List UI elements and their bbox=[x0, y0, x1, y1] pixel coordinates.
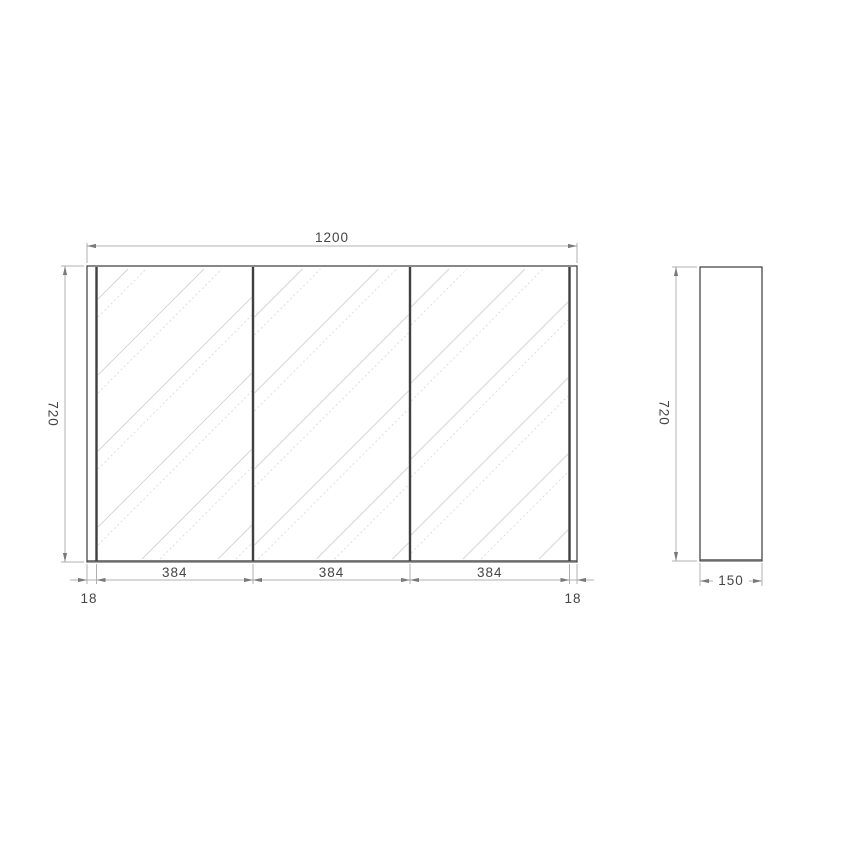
mirror-hatch-line bbox=[160, 467, 252, 559]
mirror-hatch-line bbox=[411, 269, 543, 401]
mirror-hatch-line bbox=[98, 269, 146, 317]
mirror-hatch-line bbox=[255, 333, 409, 487]
arrowhead-top bbox=[674, 267, 678, 276]
arrowhead-left bbox=[87, 244, 96, 248]
cabinet-outline bbox=[87, 266, 577, 562]
mirror-hatch-line bbox=[411, 269, 449, 307]
arrowhead bbox=[97, 578, 106, 582]
mirror-hatch-line bbox=[98, 269, 222, 393]
mirror-hatch-line bbox=[255, 269, 397, 411]
arrowhead-bottom bbox=[674, 552, 678, 561]
dim-label-door-3: 384 bbox=[477, 565, 503, 580]
arrowhead-right bbox=[753, 579, 762, 583]
mirror-panel-2-hatch bbox=[255, 269, 409, 559]
mirror-hatch-line bbox=[393, 543, 409, 559]
mirror-hatch-line bbox=[481, 472, 568, 559]
dim-label-total-width: 1200 bbox=[315, 230, 349, 245]
mirror-hatch-line bbox=[98, 373, 252, 527]
mirror-hatch-line bbox=[411, 269, 467, 325]
mirror-hatch-line bbox=[335, 485, 409, 559]
dim-front-height: 720 bbox=[46, 266, 85, 562]
mirror-hatch-line bbox=[411, 396, 568, 553]
arrowhead bbox=[244, 578, 253, 582]
mirror-panel-3-hatch bbox=[411, 269, 568, 559]
side-outline bbox=[700, 267, 762, 561]
mirror-hatch-line bbox=[218, 525, 252, 559]
arrowhead-bottom bbox=[63, 553, 67, 562]
mirror-hatch-line bbox=[539, 530, 568, 559]
arrowhead-right bbox=[568, 244, 577, 248]
mirror-hatch-line bbox=[98, 315, 252, 469]
arrowhead bbox=[78, 578, 87, 582]
arrowhead bbox=[410, 578, 419, 582]
mirror-hatch-line bbox=[411, 320, 568, 477]
dim-label-door-1: 384 bbox=[162, 565, 188, 580]
mirror-panel-1-hatch bbox=[98, 269, 252, 559]
mirror-hatch-line bbox=[255, 269, 303, 317]
mirror-hatch-line bbox=[411, 302, 568, 459]
dim-depth: 150 bbox=[700, 563, 762, 588]
arrowhead bbox=[577, 578, 586, 582]
mirror-hatch-line bbox=[411, 269, 525, 383]
dim-total-width: 1200 bbox=[87, 230, 577, 263]
side-view bbox=[700, 267, 762, 561]
mirror-hatch-line bbox=[142, 449, 252, 559]
arrowhead bbox=[561, 578, 570, 582]
dim-label-depth: 150 bbox=[718, 573, 744, 588]
technical-drawing: 1200 720 384 384 384 18 18 bbox=[0, 0, 850, 850]
mirror-hatch-line bbox=[411, 378, 568, 535]
mirror-hatch-line bbox=[255, 315, 409, 469]
dim-label-door-2: 384 bbox=[319, 565, 345, 580]
mirror-hatch-line bbox=[255, 269, 379, 393]
mirror-hatch-line bbox=[236, 543, 252, 559]
arrowhead-top bbox=[63, 266, 67, 275]
dim-label-front-height: 720 bbox=[46, 401, 61, 427]
mirror-hatch-line bbox=[98, 391, 252, 545]
dim-label-side-height: 720 bbox=[657, 400, 672, 426]
dim-label-edge-right: 18 bbox=[564, 591, 581, 606]
arrowhead bbox=[253, 578, 262, 582]
dim-bottom-chain: 384 384 384 18 18 bbox=[70, 564, 594, 606]
front-view bbox=[87, 266, 577, 562]
dim-label-edge-left: 18 bbox=[80, 591, 97, 606]
arrowhead-left bbox=[700, 579, 709, 583]
mirror-hatch-line bbox=[317, 467, 409, 559]
dim-side-height: 720 bbox=[657, 267, 698, 561]
mirror-hatch-line bbox=[259, 409, 409, 559]
mirror-hatch-line bbox=[255, 269, 321, 335]
mirror-hatch-line bbox=[98, 269, 204, 375]
mirror-hatch-line bbox=[98, 297, 252, 451]
mirror-hatch-line bbox=[98, 269, 128, 299]
arrowhead bbox=[401, 578, 410, 582]
mirror-hatch-line bbox=[463, 454, 568, 559]
mirror-hatch-line bbox=[255, 391, 409, 545]
